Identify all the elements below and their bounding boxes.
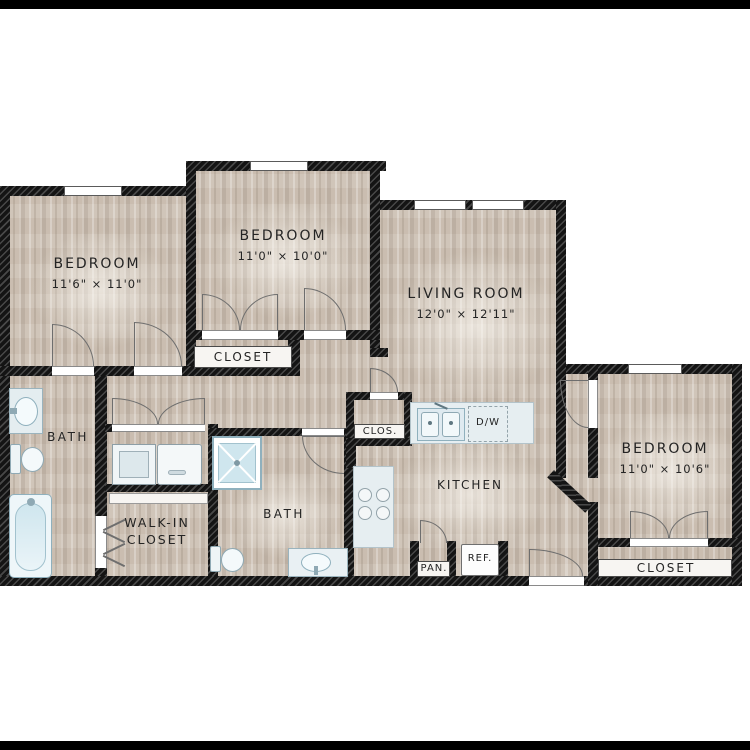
dryer-handle (168, 470, 186, 475)
wall-segment (498, 541, 508, 576)
wall-segment (0, 576, 742, 586)
room-label-bedroom3: BEDROOM (621, 441, 708, 457)
room-label-clos: CLOS. (363, 426, 398, 437)
stove-burner (376, 506, 390, 520)
toilet-bowl (21, 447, 44, 472)
wall-segment (370, 161, 380, 357)
door-opening-entry (529, 576, 584, 586)
washer-door (119, 451, 149, 478)
wall-segment (186, 330, 202, 340)
floor-highlight (390, 250, 560, 400)
room-label-bedroom2: BEDROOM (239, 228, 326, 244)
door-opening (304, 330, 346, 340)
room-label-bath2: BATH (263, 507, 305, 521)
wall-segment (105, 484, 218, 492)
faucet (314, 566, 318, 575)
wall-segment (708, 538, 742, 547)
label-dishwasher: D/W (476, 417, 500, 428)
floor-highlight (390, 440, 550, 550)
dryer (157, 444, 202, 485)
door-opening (630, 538, 708, 547)
wall-segment (588, 364, 598, 380)
window (628, 364, 682, 374)
wall-segment (105, 424, 112, 432)
toilet-bowl (221, 548, 244, 572)
toilet-tank (10, 444, 21, 474)
room-dims-bedroom1: 11'6" × 11'0" (52, 277, 143, 291)
door-opening (588, 380, 598, 428)
walkin-shelf (109, 493, 208, 504)
wall-segment (588, 428, 598, 478)
window (414, 200, 466, 210)
door-opening (370, 392, 398, 400)
window (472, 200, 524, 210)
wall-segment (556, 200, 566, 478)
room-label-pantry: PAN. (421, 563, 448, 574)
wall-segment (346, 330, 380, 340)
wall-segment (376, 200, 566, 210)
wall-segment (94, 366, 134, 376)
label-refrigerator: REF. (468, 553, 493, 564)
door-opening (95, 516, 107, 568)
stove-burner (376, 488, 390, 502)
room-label-living: LIVING ROOM (407, 286, 524, 302)
toilet-tank (210, 546, 221, 572)
room-label-bath1: BATH (47, 430, 89, 444)
room-dims-bedroom2: 11'0" × 10'0" (238, 249, 329, 263)
top-border-bar (0, 0, 750, 9)
tub-faucet (27, 498, 35, 506)
wall-segment (588, 502, 598, 586)
sink-drain (428, 421, 432, 425)
wall-segment (0, 366, 52, 376)
room-dims-living: 12'0" × 12'11" (416, 307, 515, 321)
room-label-bedroom1: BEDROOM (53, 256, 140, 272)
wall-segment (278, 330, 304, 340)
door-opening (202, 330, 278, 340)
room-label-closet3: CLOSET (637, 561, 696, 575)
wall-segment (370, 348, 388, 357)
wall-segment (208, 428, 302, 436)
wall-segment (598, 538, 630, 547)
door-opening (134, 366, 182, 376)
shower-drain (234, 460, 240, 466)
stove-burner (358, 488, 372, 502)
room-label-walkin-line2: CLOSET (127, 532, 188, 547)
window (64, 186, 122, 196)
door-opening (112, 424, 205, 432)
wall-segment (346, 438, 356, 468)
wall-segment (732, 364, 742, 586)
room-label-closet2: CLOSET (214, 350, 273, 364)
faucet (10, 408, 17, 414)
sink-drain (449, 421, 453, 425)
bottom-border-bar (0, 741, 750, 750)
door-opening (52, 366, 94, 376)
stove-burner (358, 506, 372, 520)
floor-plan: BEDROOM 11'6" × 11'0" BEDROOM 11'0" × 10… (0, 0, 750, 750)
bathtub-basin (15, 503, 46, 571)
room-label-walkin-line1: WALK-IN (124, 515, 190, 530)
door-opening (302, 428, 344, 436)
window (250, 161, 308, 171)
room-dims-bedroom3: 11'0" × 10'6" (620, 462, 711, 476)
wall-segment (186, 161, 196, 376)
sink-basin (14, 397, 38, 426)
room-label-kitchen: KITCHEN (437, 478, 503, 492)
